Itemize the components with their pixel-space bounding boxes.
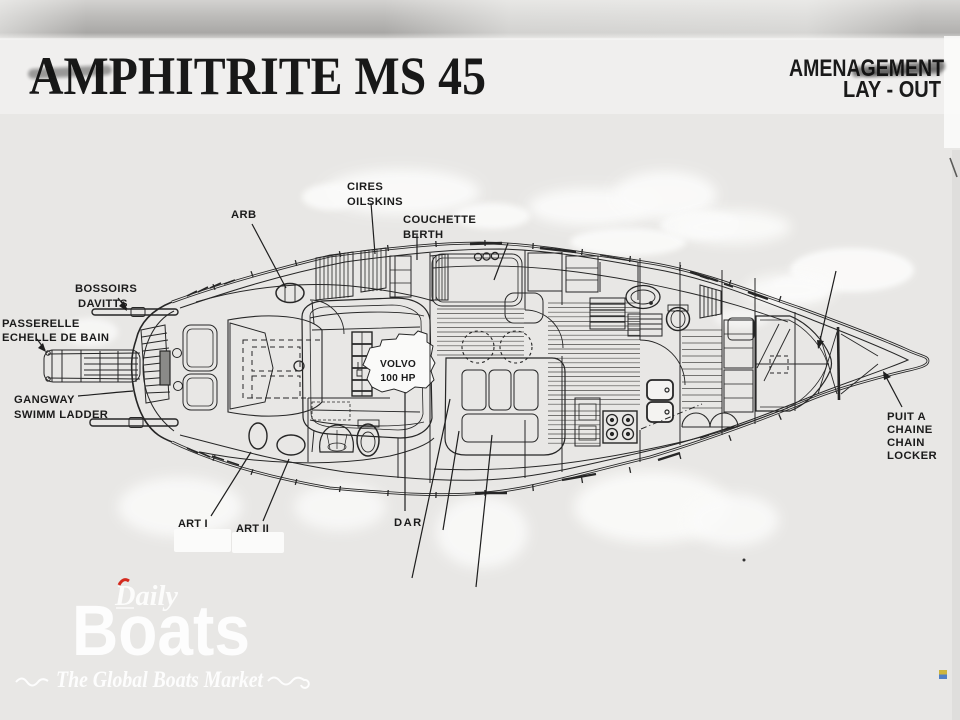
svg-text:VOLVO: VOLVO [380, 359, 416, 370]
svg-text:LOCKER: LOCKER [887, 450, 937, 462]
svg-text:PUIT A: PUIT A [887, 411, 926, 423]
svg-text:Boats: Boats [72, 592, 250, 671]
svg-text:LAY - OUT: LAY - OUT [843, 76, 941, 102]
svg-text:BOSSOIRS: BOSSOIRS [75, 283, 137, 295]
svg-text:CHAINE: CHAINE [887, 424, 933, 436]
svg-text:DAVITTS: DAVITTS [78, 298, 128, 310]
svg-text:SWIMM LADDER: SWIMM LADDER [14, 409, 108, 421]
svg-text:CIRES: CIRES [347, 181, 383, 193]
svg-text:BERTH: BERTH [403, 229, 444, 241]
svg-text:GANGWAY: GANGWAY [14, 394, 75, 406]
svg-text:OILSKINS: OILSKINS [347, 196, 403, 208]
svg-text:The Global Boats Market: The Global Boats Market [56, 667, 264, 692]
svg-text:ART II: ART II [236, 523, 269, 535]
svg-text:COUCHETTE: COUCHETTE [403, 214, 476, 226]
svg-text:AMPHITRITE MS 45: AMPHITRITE MS 45 [29, 46, 486, 106]
svg-text:ECHELLE DE BAIN: ECHELLE DE BAIN [2, 332, 109, 344]
svg-text:DAR: DAR [394, 517, 423, 529]
svg-text:100 HP: 100 HP [380, 373, 415, 384]
svg-text:ARB: ARB [231, 209, 256, 221]
svg-text:ART I: ART I [178, 518, 208, 530]
svg-text:CHAIN: CHAIN [887, 437, 925, 449]
svg-text:PASSERELLE: PASSERELLE [2, 318, 80, 330]
